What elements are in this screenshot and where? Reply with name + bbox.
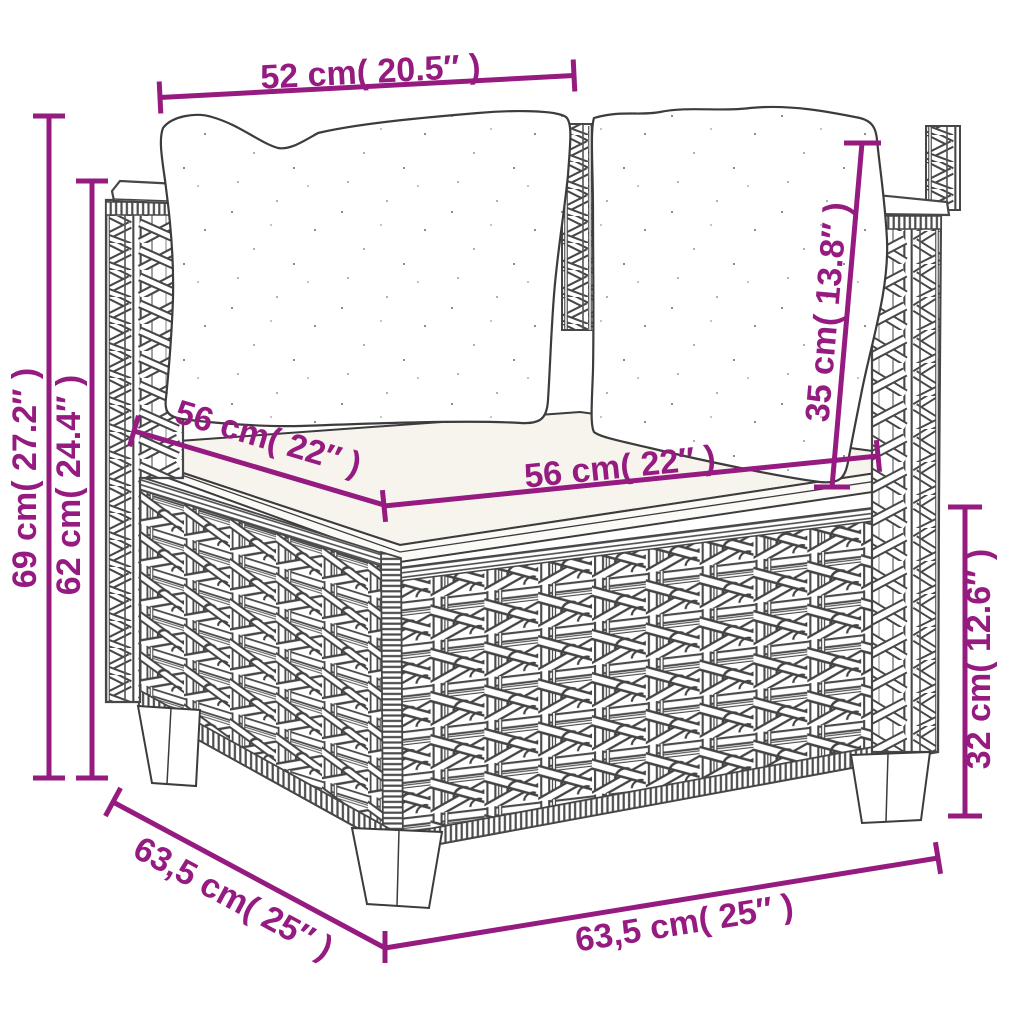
svg-text:69 cm( 27.2″ ): 69 cm( 27.2″ ): [6, 368, 44, 588]
svg-text:32 cm( 12.6″ ): 32 cm( 12.6″ ): [960, 549, 998, 769]
svg-text:62 cm( 24.4″ ): 62 cm( 24.4″ ): [50, 375, 88, 595]
